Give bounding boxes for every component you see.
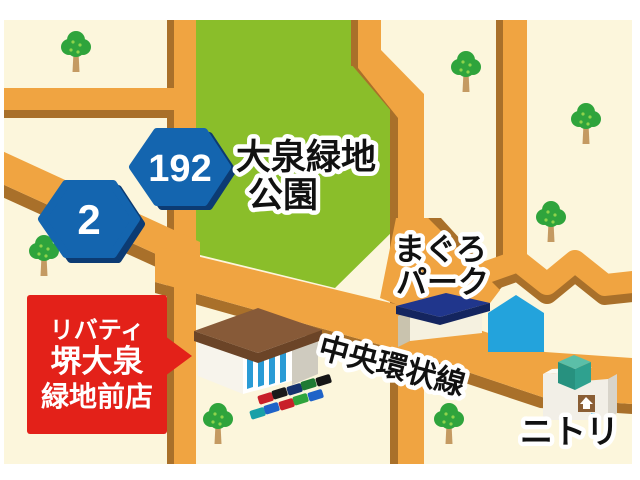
park-name-label-line1: 大泉緑地 — [236, 138, 376, 177]
route-sign-192: 192 — [133, 132, 232, 206]
maguro-park-label-line2: パーク — [396, 265, 489, 300]
park-name-label-line2: 公園 — [248, 176, 318, 215]
map-illustration: 192 2 大泉緑地 公園 まぐろ パーク 中央環状線 ニトリ リバティ 堺大泉… — [0, 0, 640, 480]
road-vertical-right — [503, 20, 527, 270]
store-callout-pointer — [165, 336, 192, 376]
store-callout: リバティ 堺大泉 緑地前店 — [27, 295, 167, 434]
nitori-label: ニトリ — [520, 413, 619, 450]
maguro-park-label-line1: まぐろ — [394, 232, 487, 267]
store-callout-name-line1: 堺大泉 — [51, 346, 144, 379]
route-sign-2-number: 2 — [77, 196, 100, 243]
road-horizontal-top — [4, 88, 174, 110]
store-callout-name-line2: 緑地前店 — [41, 382, 153, 411]
route-sign-192-number: 192 — [148, 148, 211, 190]
store-callout-brand: リバティ — [50, 318, 145, 343]
